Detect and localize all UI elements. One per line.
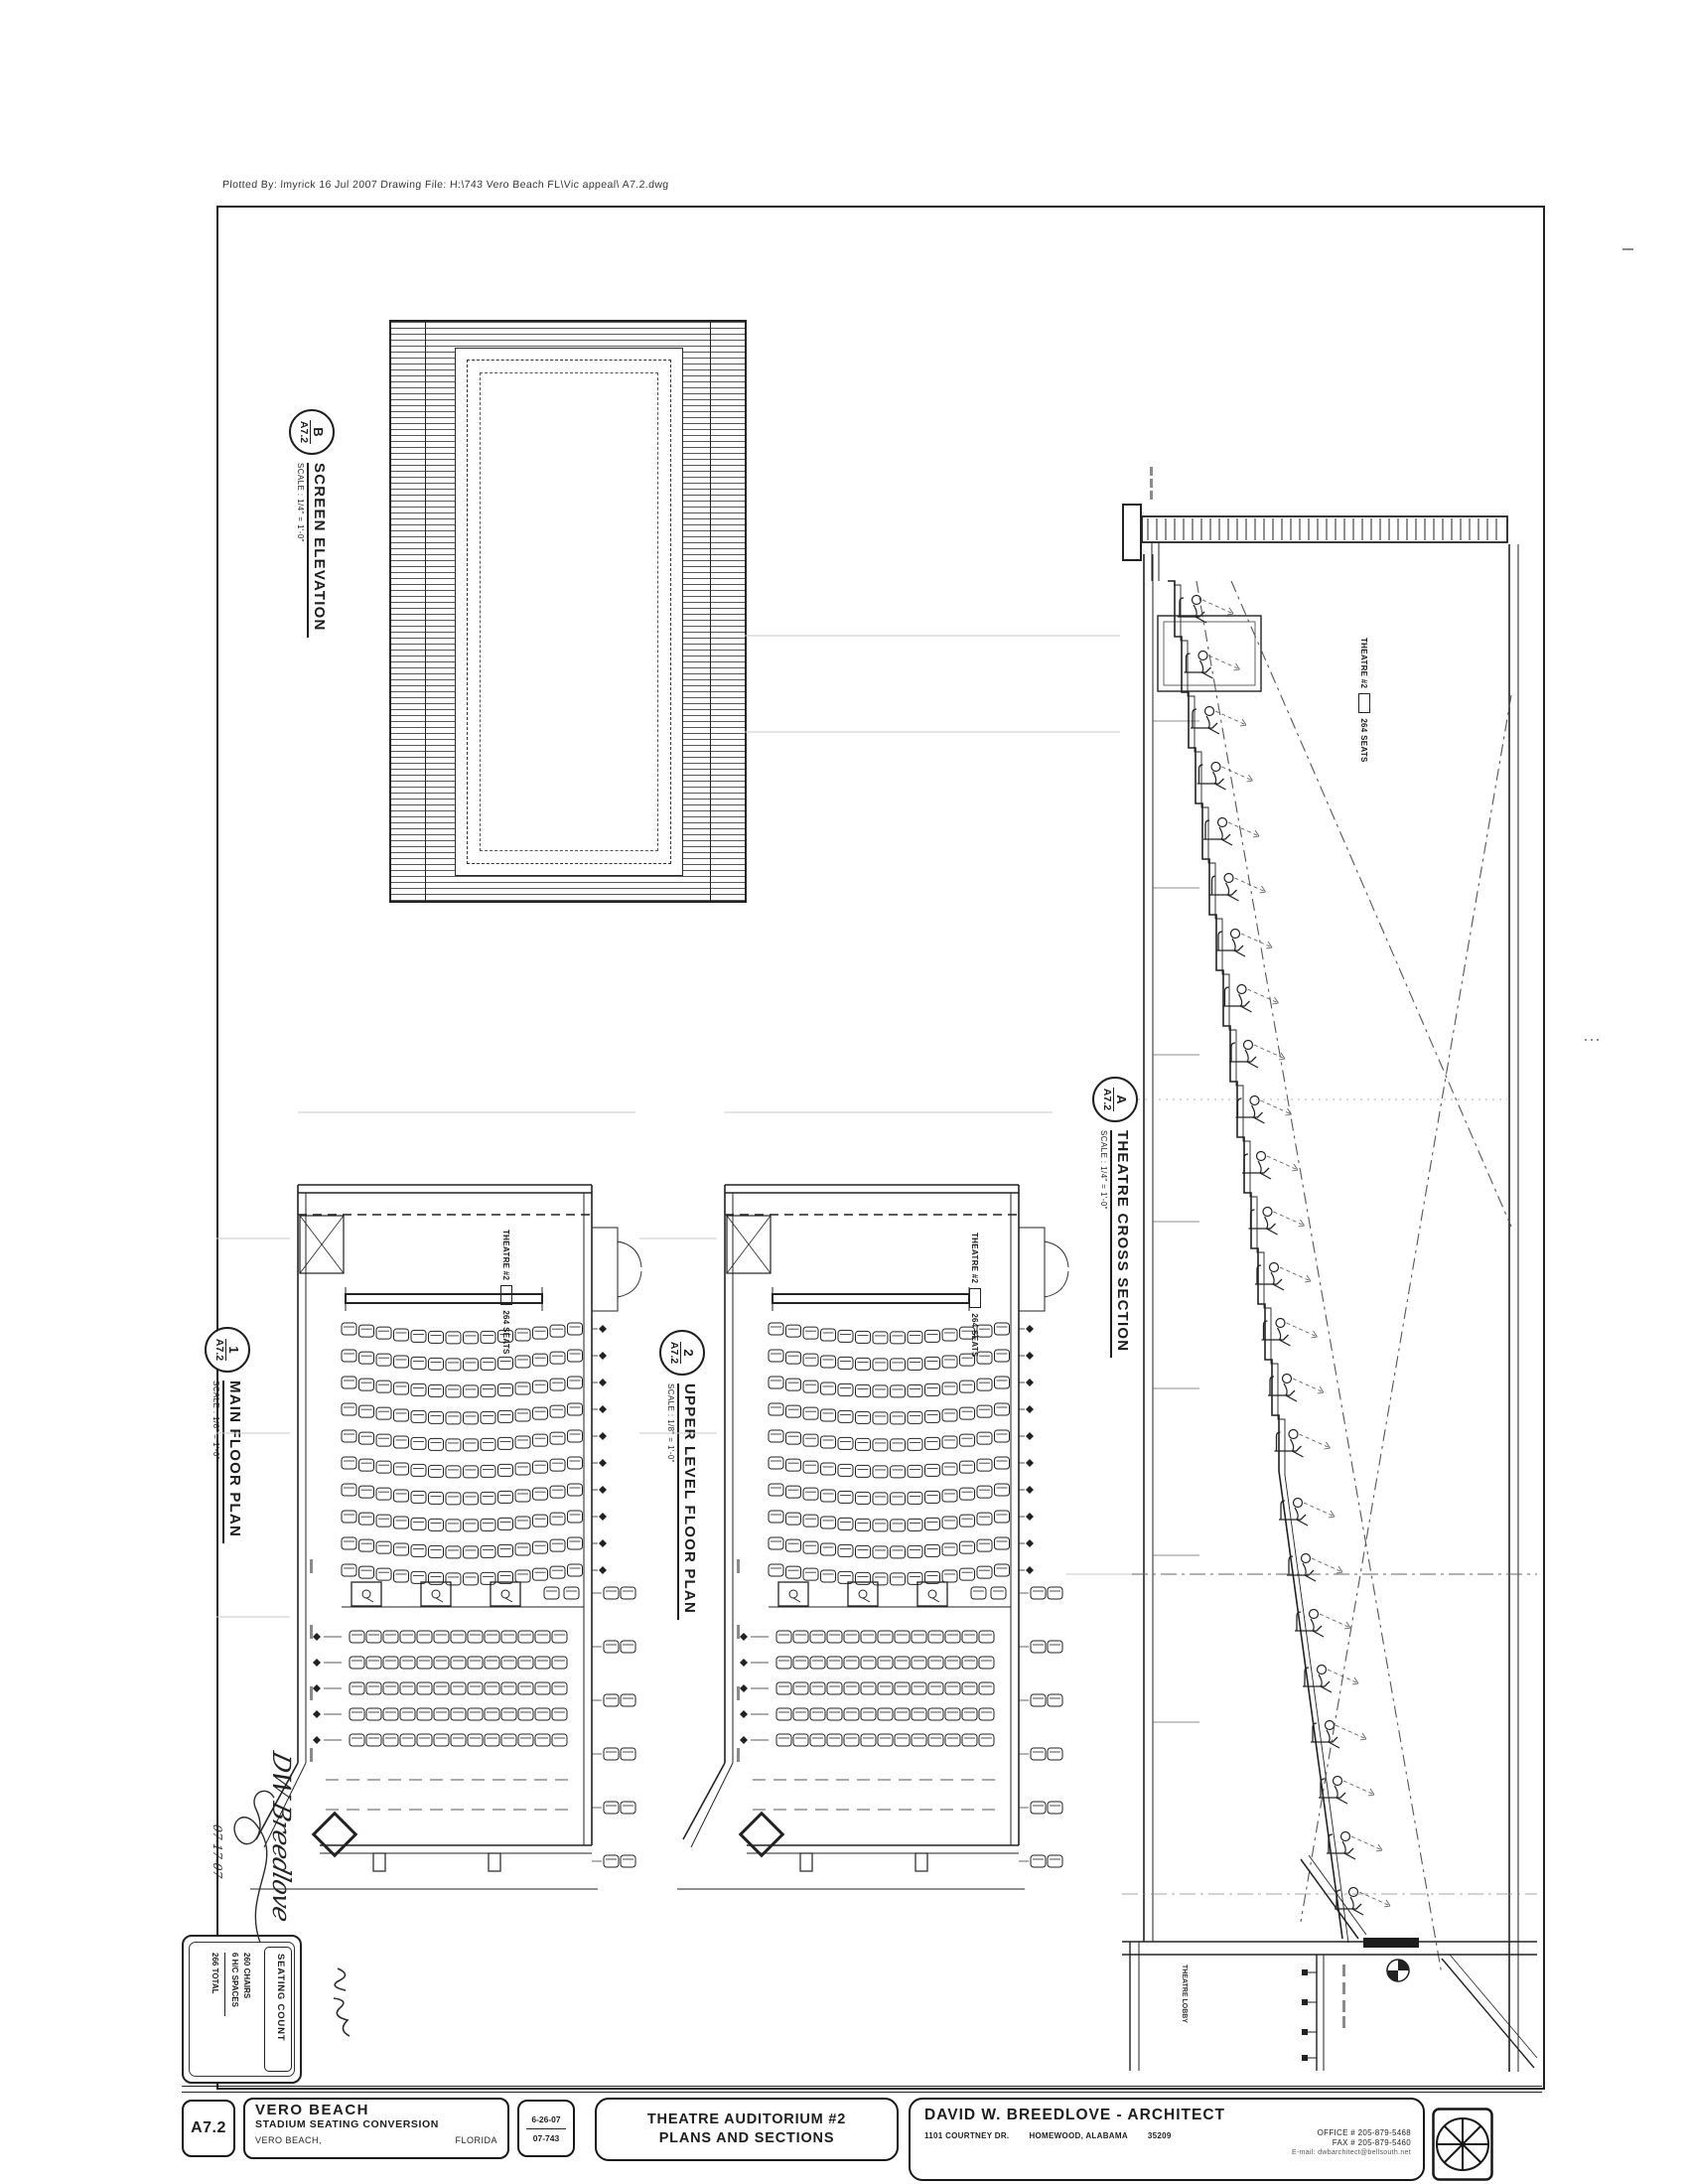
seated-figure: [1236, 1096, 1292, 1124]
seated-figure: [1178, 596, 1233, 624]
guide-lines: [216, 636, 1132, 1617]
seated-figure: [1319, 1777, 1374, 1805]
seated-figure: [1229, 1041, 1285, 1069]
seated-figure: [1287, 1554, 1342, 1582]
seated-figure: [1255, 1263, 1311, 1291]
seated-figure: [1262, 1319, 1318, 1347]
theatre-cross-section-linework: [1122, 467, 1537, 2072]
seated-figure: [1275, 1430, 1331, 1458]
drawing-linework: [0, 0, 1688, 2184]
seated-figure: [1295, 1610, 1350, 1638]
seated-figure: [1203, 818, 1259, 846]
scanned-drawing-sheet: { "page": { "plot_stamp": "Plotted By: l…: [0, 0, 1688, 2184]
main-floor-plan-linework: [250, 1185, 641, 1889]
seated-figure: [1185, 652, 1240, 679]
seated-figure: [1279, 1499, 1335, 1527]
seated-figure: [1191, 707, 1246, 735]
handwritten-marks: [234, 1791, 350, 2036]
upper-level-floor-plan-linework: [677, 1185, 1068, 1889]
seated-figure: [1197, 763, 1253, 791]
seated-figure: [1216, 930, 1272, 957]
seated-figure: [1210, 874, 1266, 902]
seated-figure: [1268, 1375, 1324, 1402]
